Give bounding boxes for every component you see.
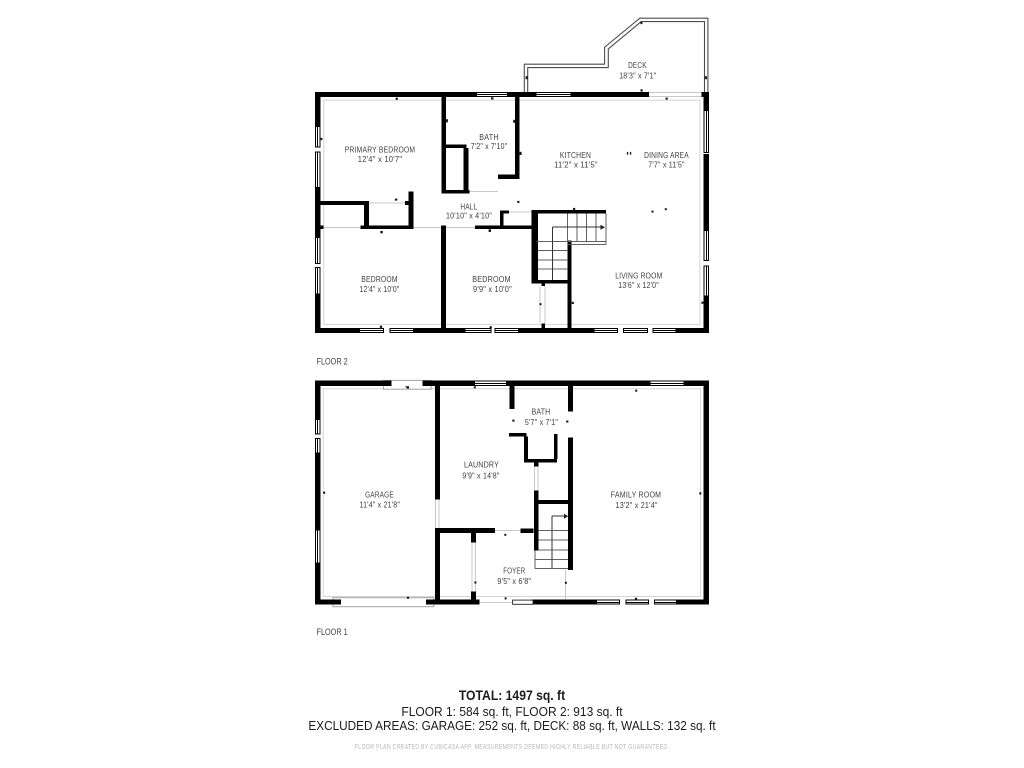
svg-text:BEDROOM: BEDROOM	[472, 274, 511, 284]
svg-text:BEDROOM: BEDROOM	[361, 274, 398, 284]
svg-text:11'4" x 21'8": 11'4" x 21'8"	[360, 499, 401, 509]
svg-text:13'2" x 21'4": 13'2" x 21'4"	[616, 500, 658, 510]
svg-text:FLOOR 1: 584 sq. ft, FLOOR 2:: FLOOR 1: 584 sq. ft, FLOOR 2: 913 sq. ft	[401, 705, 623, 719]
svg-text:12'4" x 10'7": 12'4" x 10'7"	[358, 154, 403, 164]
svg-text:BATH: BATH	[532, 407, 551, 417]
svg-text:DECK: DECK	[628, 60, 647, 70]
svg-text:11'2" x 11'5": 11'2" x 11'5"	[554, 160, 598, 170]
svg-text:GARAGE: GARAGE	[365, 489, 394, 499]
svg-text:9'9" x 10'0": 9'9" x 10'0"	[473, 284, 512, 294]
svg-text:FLOOR 1: FLOOR 1	[317, 627, 348, 637]
svg-text:10'10" x 4'10": 10'10" x 4'10"	[446, 211, 492, 221]
svg-text:9'9" x 14'8": 9'9" x 14'8"	[462, 470, 499, 480]
svg-text:EXCLUDED AREAS: GARAGE: 252 sq: EXCLUDED AREAS: GARAGE: 252 sq. ft, DECK…	[308, 719, 716, 733]
svg-text:FLOOR 2: FLOOR 2	[317, 356, 348, 366]
svg-text:FLOOR PLAN CREATED BY CUBICASA: FLOOR PLAN CREATED BY CUBICASA APP. MEAS…	[355, 742, 669, 751]
svg-text:18'3" x 7'1": 18'3" x 7'1"	[619, 70, 656, 80]
svg-text:12'4" x 10'0": 12'4" x 10'0"	[359, 284, 399, 294]
svg-text:LAUNDRY: LAUNDRY	[464, 459, 499, 469]
svg-text:7'2" x 7'10": 7'2" x 7'10"	[471, 141, 508, 151]
svg-text:9'5" x 6'8": 9'5" x 6'8"	[497, 576, 531, 586]
svg-text:7'7" x 11'5": 7'7" x 11'5"	[648, 160, 685, 170]
svg-text:FOYER: FOYER	[503, 566, 525, 576]
svg-text:FAMILY ROOM: FAMILY ROOM	[611, 489, 661, 499]
svg-text:TOTAL: 1497 sq. ft: TOTAL: 1497 sq. ft	[459, 687, 566, 703]
svg-text:5'7" x 7'1": 5'7" x 7'1"	[525, 417, 558, 427]
svg-text:13'6" x 12'0": 13'6" x 12'0"	[618, 280, 659, 290]
